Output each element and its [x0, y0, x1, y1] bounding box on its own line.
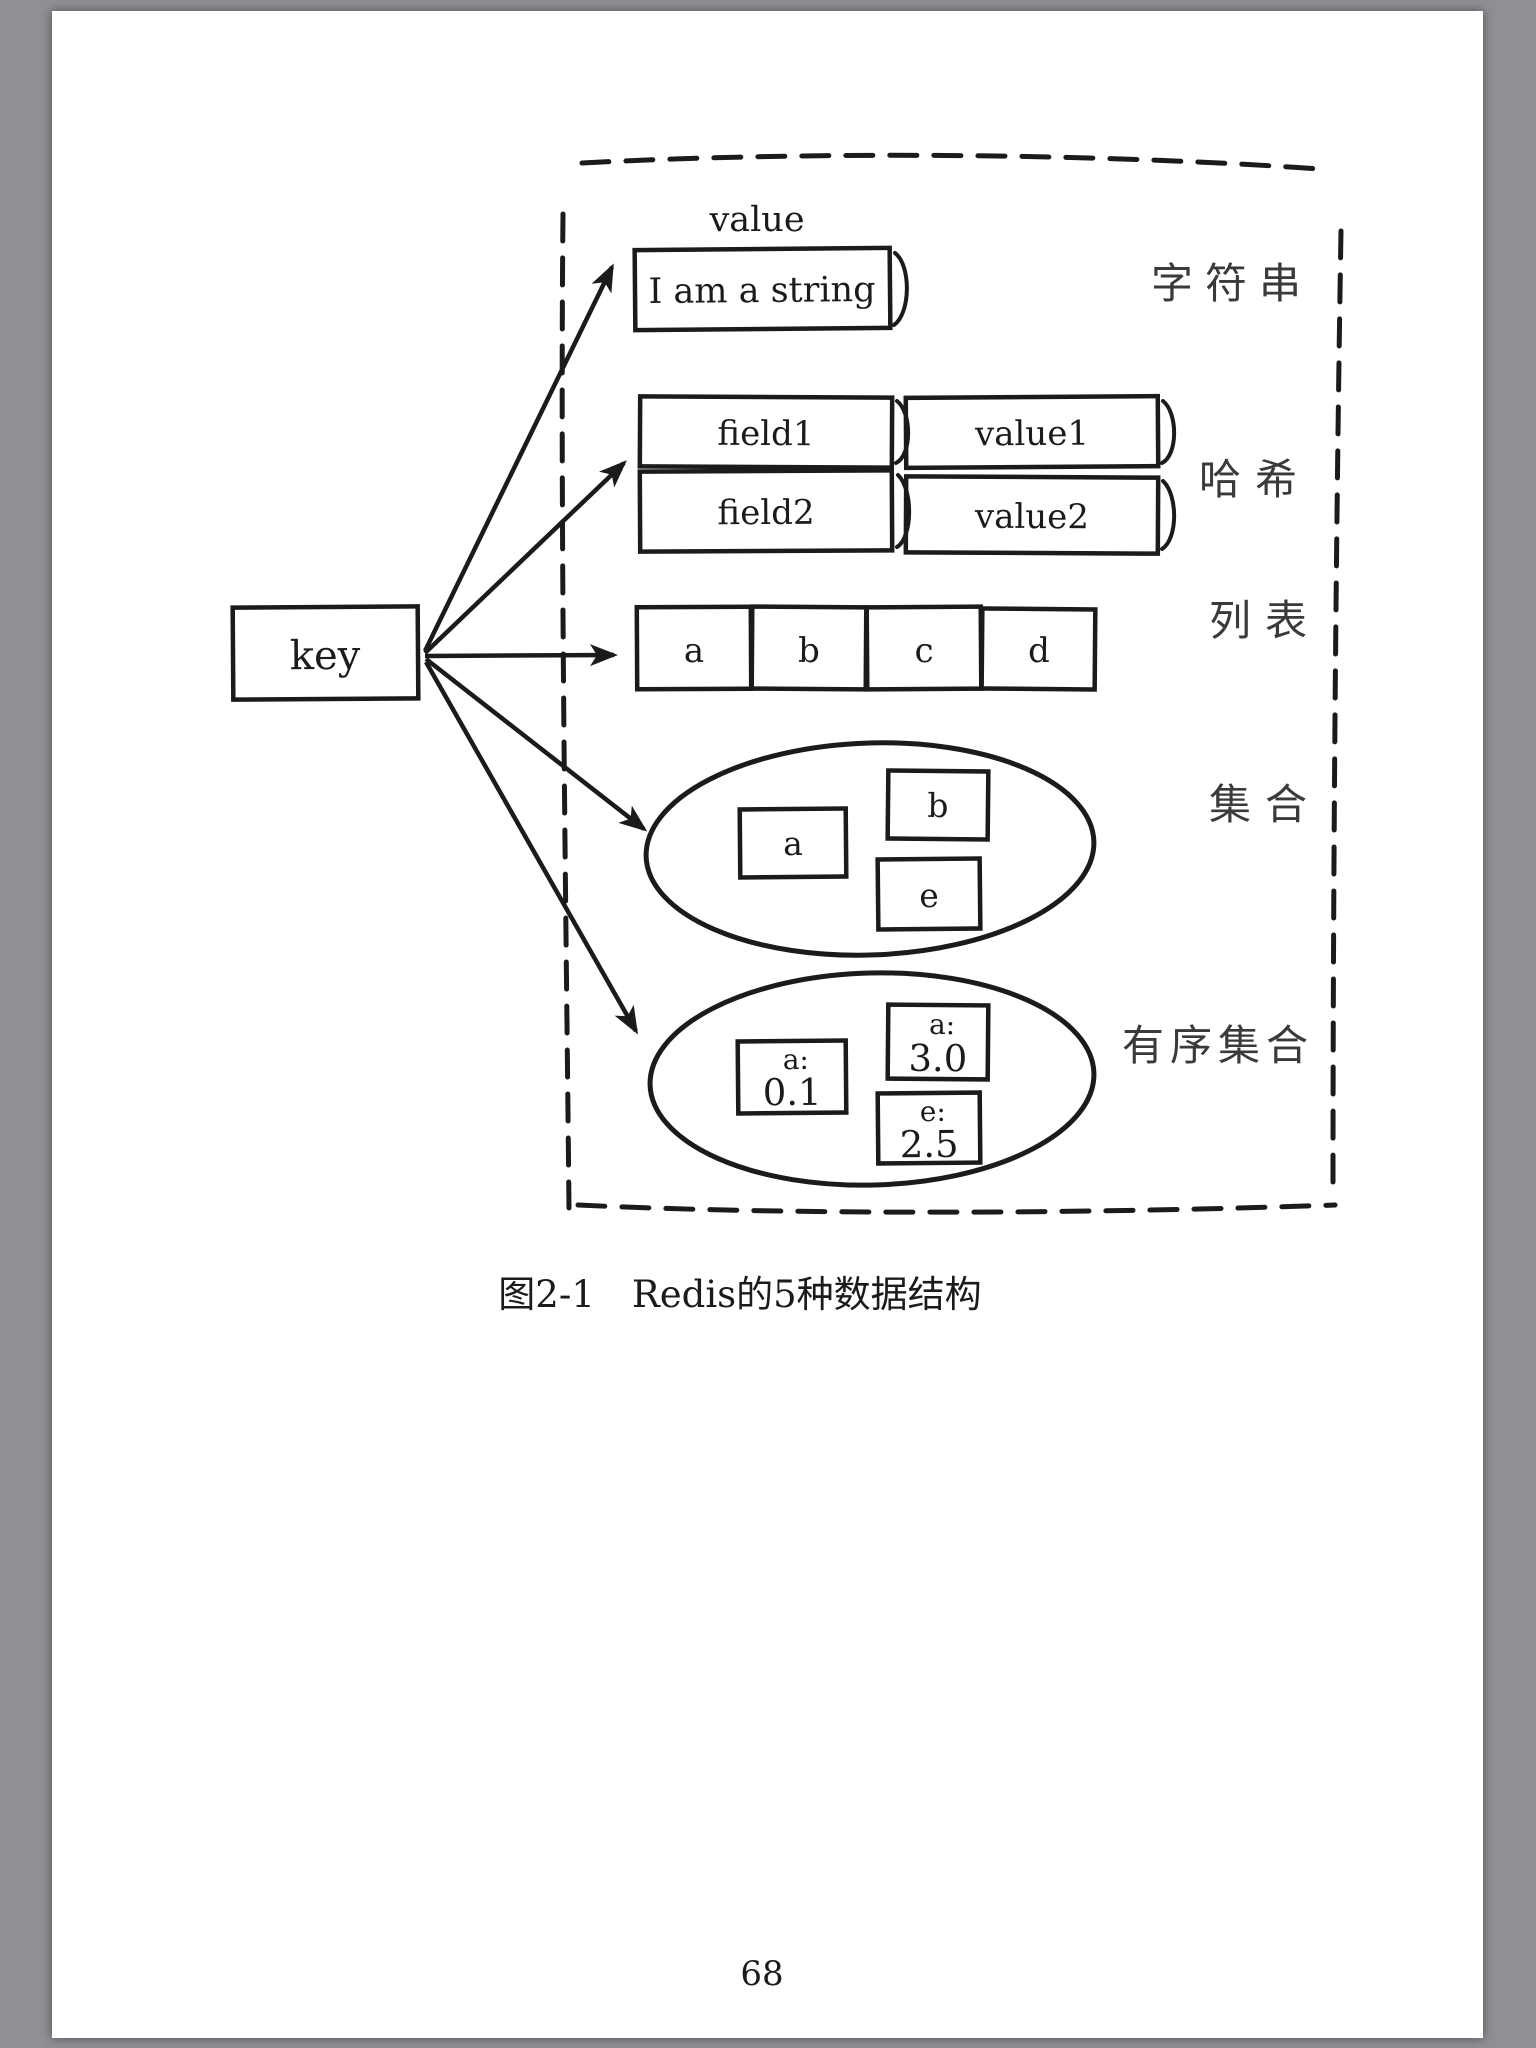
key-label: key [290, 633, 361, 679]
sorted-set-structure: a: 0.1 a: 3.0 e: 2.5 有序集合 [647, 967, 1314, 1191]
key-arrows [425, 267, 644, 1031]
arrow-to-string [425, 267, 612, 651]
list-structure: a b c d 列表 [637, 596, 1321, 689]
set-member-e: e [919, 876, 939, 915]
set-member-b: b [927, 786, 949, 825]
sorted-set-type-label: 有序集合 [1122, 1021, 1314, 1070]
zset-member-2-score: 3.0 [908, 1037, 967, 1081]
hash-structure: field1 value1 field2 value2 哈希 [640, 396, 1311, 554]
string-value: I am a string [648, 270, 875, 312]
hash-value-2: value2 [974, 497, 1089, 538]
zset-member-3-score: 2.5 [900, 1123, 959, 1167]
list-item-d: d [1028, 631, 1050, 671]
set-structure: a b e 集合 [642, 735, 1321, 963]
book-page: key value I am a string 字符串 field1 value… [52, 11, 1483, 2038]
arrow-to-set [426, 659, 644, 829]
list-item-a: a [684, 631, 704, 671]
hash-field-1: field1 [717, 414, 814, 455]
hash-type-label: 哈希 [1199, 455, 1311, 504]
arrow-to-list [425, 655, 614, 656]
hash-value-1: value1 [974, 414, 1089, 455]
set-member-a: a [783, 824, 803, 863]
key-box: key [233, 606, 419, 699]
string-type-label: 字符串 [1151, 259, 1313, 308]
arrow-to-sorted-set [426, 662, 636, 1031]
figure-caption: 图2-1 Redis的5种数据结构 [498, 1273, 981, 1316]
list-type-label: 列表 [1209, 596, 1321, 645]
zset-member-1-score: 0.1 [763, 1071, 822, 1115]
redis-data-structures-figure: key value I am a string 字符串 field1 value… [52, 11, 1483, 2038]
arrow-to-hash [425, 463, 624, 653]
page-number: 68 [740, 1954, 783, 1994]
set-type-label: 集合 [1209, 780, 1321, 829]
list-item-c: c [914, 631, 933, 671]
hash-field-2: field2 [717, 493, 814, 534]
list-item-b: b [798, 631, 820, 671]
string-structure: I am a string 字符串 [635, 248, 1313, 330]
value-label: value [708, 200, 804, 240]
